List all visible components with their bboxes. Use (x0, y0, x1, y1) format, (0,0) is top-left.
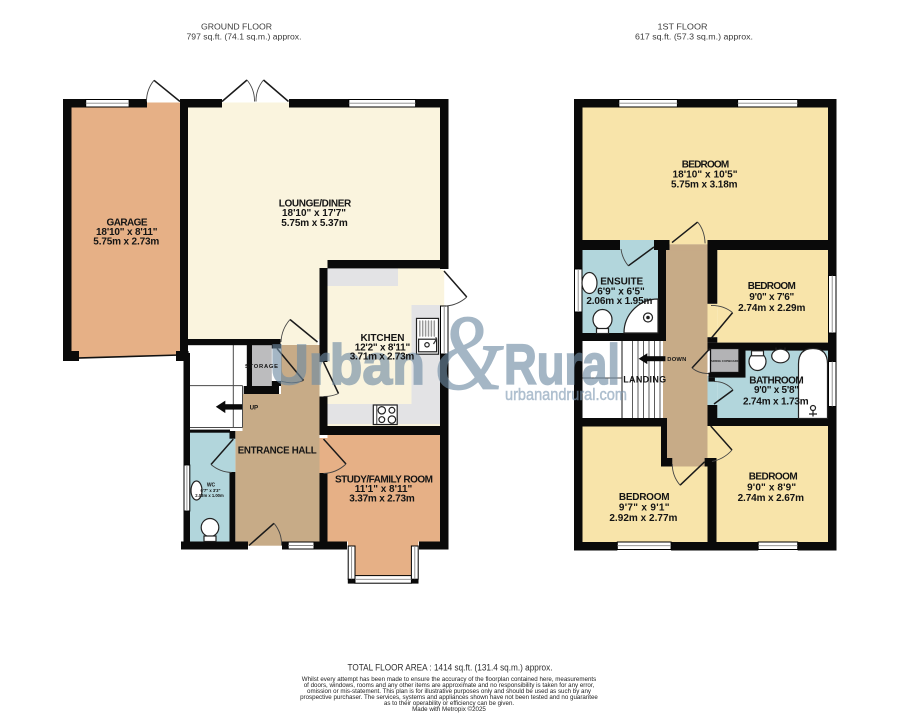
svg-text:3.37m x 2.73m: 3.37m x 2.73m (349, 494, 415, 505)
svg-text:9'0" x 5'8": 9'0" x 5'8" (754, 385, 799, 396)
svg-text:urbanandrural.com: urbanandrural.com (505, 386, 627, 404)
svg-text:UP: UP (250, 405, 259, 412)
svg-text:2.92m x 2.77m: 2.92m x 2.77m (609, 513, 677, 524)
svg-text:2.74m x 2.29m: 2.74m x 2.29m (738, 303, 805, 314)
svg-text:Made with Metropix ©2025: Made with Metropix ©2025 (412, 706, 486, 713)
svg-text:5.75m x 3.18m: 5.75m x 3.18m (671, 179, 738, 190)
svg-text:9'0" x 8'9": 9'0" x 8'9" (747, 482, 796, 493)
svg-text:9'0" x 7'6": 9'0" x 7'6" (749, 292, 794, 303)
svg-text:797 sq.ft. (74.1 sq.m.) approx: 797 sq.ft. (74.1 sq.m.) approx. (187, 33, 302, 42)
svg-text:BEDROOM: BEDROOM (748, 281, 796, 292)
svg-text:AIRING CUPBOARD: AIRING CUPBOARD (710, 359, 740, 363)
svg-text:ENTRANCE HALL: ENTRANCE HALL (238, 446, 317, 457)
svg-text:5.75m x 2.73m: 5.75m x 2.73m (93, 237, 159, 248)
svg-text:2.74m x 1.73m: 2.74m x 1.73m (743, 396, 809, 407)
svg-text:1ST FLOOR: 1ST FLOOR (658, 23, 708, 32)
svg-text:TOTAL FLOOR AREA : 1414 sq.ft.: TOTAL FLOOR AREA : 1414 sq.ft. (131.4 sq… (348, 663, 553, 673)
svg-text:617 sq.ft. (57.3 sq.m.) approx: 617 sq.ft. (57.3 sq.m.) approx. (635, 33, 753, 42)
svg-text:3.71m x 2.73m: 3.71m x 2.73m (350, 352, 415, 363)
svg-text:5.75m x 5.37m: 5.75m x 5.37m (281, 218, 348, 229)
svg-text:2.03m x 1.00m: 2.03m x 1.00m (195, 493, 224, 498)
svg-text:BEDROOM: BEDROOM (749, 472, 798, 483)
svg-text:2.74m x 2.67m: 2.74m x 2.67m (738, 493, 804, 504)
svg-text:LANDING: LANDING (623, 375, 666, 385)
svg-text:&: & (434, 294, 504, 413)
svg-text:9'7" x 9'1": 9'7" x 9'1" (619, 502, 670, 513)
svg-text:STORAGE: STORAGE (245, 364, 278, 370)
svg-text:DOWN: DOWN (667, 357, 686, 363)
svg-text:2.06m x 1.95m: 2.06m x 1.95m (586, 296, 652, 307)
svg-text:GROUND FLOOR: GROUND FLOOR (201, 23, 272, 32)
